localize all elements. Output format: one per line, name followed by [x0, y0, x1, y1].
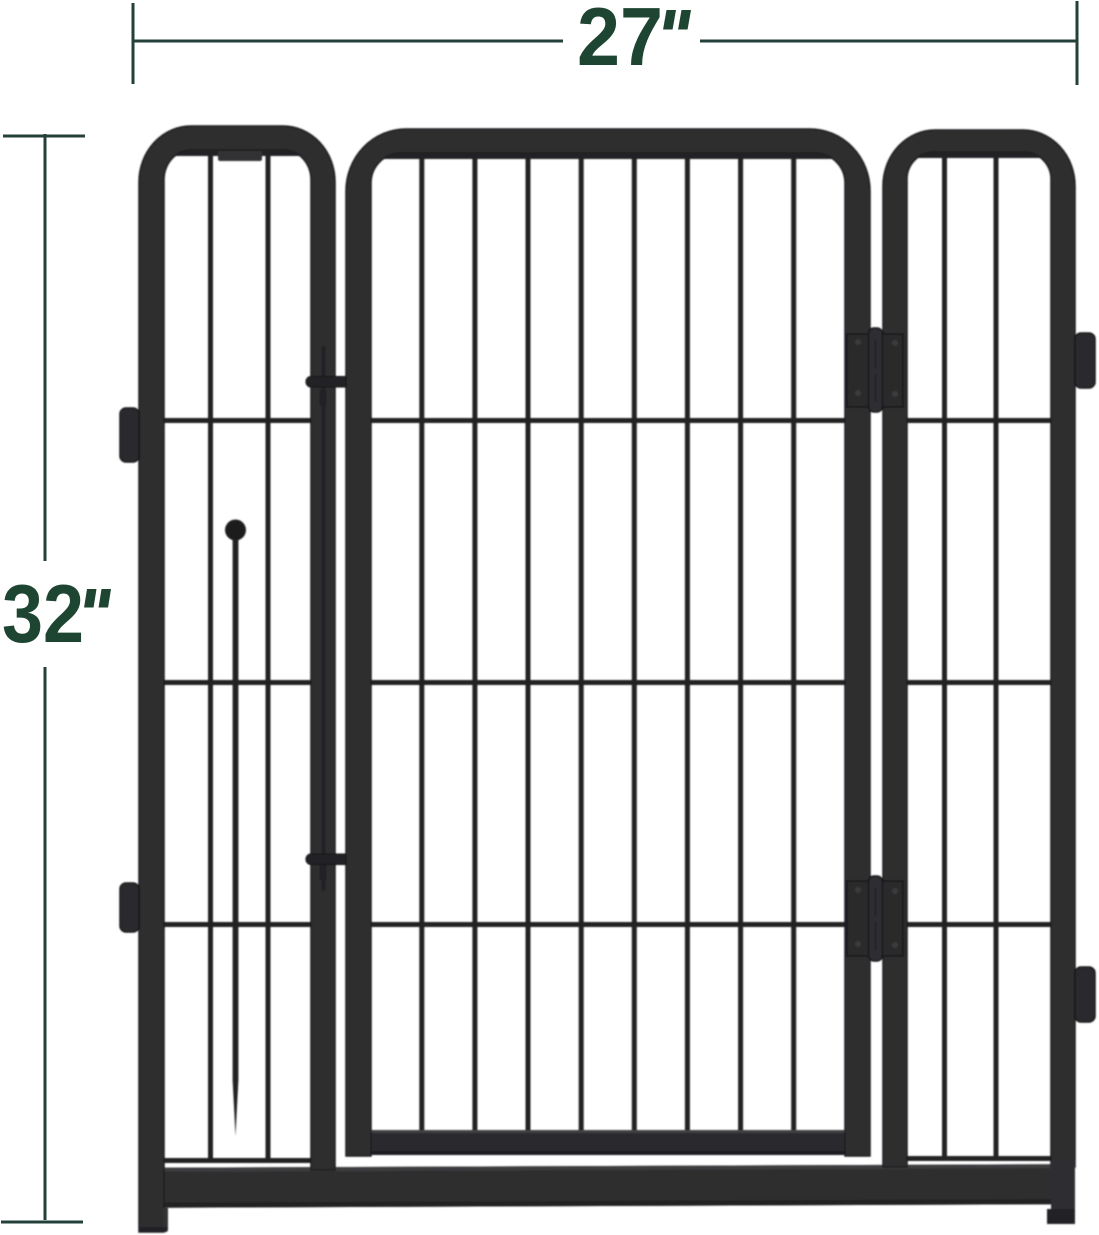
- svg-text:27: 27: [577, 0, 663, 83]
- svg-text:32: 32: [2, 567, 84, 660]
